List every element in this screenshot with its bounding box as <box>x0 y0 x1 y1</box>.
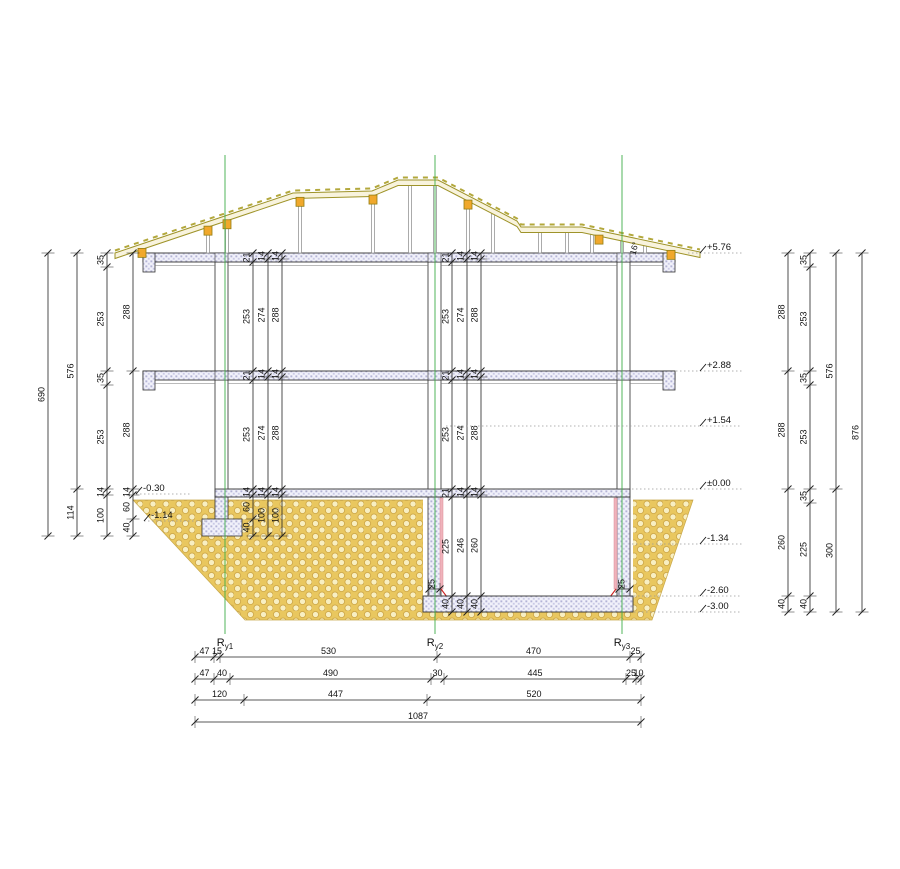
purlin-block <box>223 220 231 229</box>
dim-label: 246 <box>456 538 466 553</box>
level-tick <box>700 589 706 596</box>
dim-label: 14 <box>96 487 106 497</box>
dim-label: 14 <box>470 251 480 261</box>
axis-label-sub: y1 <box>225 642 234 651</box>
dim-label: 530 <box>321 646 336 656</box>
dim-label: 225 <box>441 539 451 554</box>
axis-label-base: R <box>614 637 622 649</box>
dim-chain: 4740490304452510 <box>192 668 645 685</box>
dim-chain: 576114 <box>66 250 84 540</box>
dim-label: 100 <box>257 508 267 523</box>
level-tick <box>700 537 706 544</box>
dim-label: 288 <box>470 425 480 440</box>
dim-label: 21 <box>441 370 451 380</box>
dim-label: 47 <box>199 668 209 678</box>
dim-label: 100 <box>271 508 281 523</box>
dim-label: 35 <box>96 373 106 383</box>
dim-label: 14 <box>257 251 267 261</box>
dim-label: 14 <box>242 487 252 497</box>
dim-label: 445 <box>527 668 542 678</box>
dim-label: 21 <box>441 488 451 498</box>
level-tick <box>700 246 706 253</box>
dim-chain: 471553047025 <box>192 646 645 663</box>
roof: 16° <box>115 178 700 260</box>
level-label: +2.88 <box>707 360 731 371</box>
dim-label: 14 <box>470 487 480 497</box>
dim-label: 25 <box>630 646 640 656</box>
dim-chain: 576300 <box>825 250 843 616</box>
level-label: -1.34 <box>707 533 729 544</box>
dim-chain: 35253352533522540 <box>799 250 817 616</box>
dim-label: 15 <box>212 646 222 656</box>
dim-label: 25 <box>617 579 627 589</box>
middle-slab-wall-block-1 <box>215 371 228 380</box>
dim-label: 40 <box>122 522 132 532</box>
dim-label: 253 <box>441 427 451 442</box>
dim-label: 40 <box>217 668 227 678</box>
dim-label: 225 <box>799 542 809 557</box>
dim-label: 40 <box>777 599 787 609</box>
dim-label: 470 <box>526 646 541 656</box>
dim-label: 40 <box>799 599 809 609</box>
purlin-block <box>595 235 603 244</box>
dim-label: 288 <box>122 422 132 437</box>
dim-chain: 1087 <box>192 711 645 728</box>
roof-post <box>539 233 542 254</box>
dim-label: 274 <box>456 425 466 440</box>
dim-label: 40 <box>441 599 451 609</box>
drawing-canvas: 16° Ry1Ry2Ry3 -0.30 -1.14 69057611435253… <box>0 0 900 869</box>
dim-label: 35 <box>799 255 809 265</box>
dim-label: 21 <box>441 252 451 262</box>
dim-label: 520 <box>526 689 541 699</box>
axis-label: Ry3 <box>614 637 631 651</box>
dim-label: 576 <box>825 363 835 378</box>
dim-label: 60 <box>242 502 252 512</box>
roof-post <box>372 196 375 253</box>
dim-label: 47 <box>199 646 209 656</box>
dim-label: 14 <box>456 251 466 261</box>
dim-label: 60 <box>122 502 132 512</box>
dim-chain: 690 <box>37 250 55 540</box>
dim-label: 14 <box>271 251 281 261</box>
roof-post <box>644 246 647 253</box>
middle-slab-wall-block-2 <box>428 371 441 380</box>
dim-label: 100 <box>96 508 106 523</box>
dim-label: 14 <box>257 369 267 379</box>
roof-posts <box>207 186 647 254</box>
dim-label: 14 <box>456 487 466 497</box>
level-label: ±0.00 <box>707 478 731 489</box>
level-tick <box>700 605 706 612</box>
dim-chain: 352533525314100 <box>96 250 114 540</box>
dim-label: 288 <box>470 307 480 322</box>
roof-post <box>591 235 594 253</box>
level-tick <box>136 487 142 494</box>
dim-label: 14 <box>257 487 267 497</box>
dim-label: 30 <box>432 668 442 678</box>
dim-label: 274 <box>456 307 466 322</box>
level-label: +5.76 <box>707 242 731 253</box>
dim-label: 576 <box>66 363 76 378</box>
axis-label-base: R <box>427 637 435 649</box>
purlin-block <box>464 200 472 209</box>
dim-label: 253 <box>242 427 252 442</box>
elevation-marker: +1.54 <box>446 415 742 426</box>
dim-label: 25 <box>427 579 437 589</box>
roof-battens <box>115 178 700 251</box>
dim-label: 274 <box>257 425 267 440</box>
level-label: -1.14 <box>151 510 173 521</box>
dim-chain: 288288146040 <box>122 250 140 540</box>
dim-label: 253 <box>242 309 252 324</box>
dim-label: 35 <box>799 491 809 501</box>
roof-post <box>492 214 495 253</box>
dim-label: 288 <box>777 422 787 437</box>
dim-label: 114 <box>66 505 76 519</box>
top-slab-wall-block-1 <box>215 253 228 262</box>
middle-slab-wall-block-3 <box>617 371 630 380</box>
waterproofing-strip-right <box>614 498 617 589</box>
dim-label: 260 <box>470 538 480 553</box>
dim-label: 40 <box>456 599 466 609</box>
roof-plane <box>115 180 700 259</box>
dim-label: 274 <box>257 307 267 322</box>
dim-label: 10 <box>633 668 643 678</box>
level-tick <box>700 482 706 489</box>
dim-label: 288 <box>271 425 281 440</box>
dim-label: 21 <box>242 370 252 380</box>
dim-label: 260 <box>777 535 787 550</box>
dim-chain: 876 <box>851 250 869 616</box>
roof-post <box>566 233 569 254</box>
elevation-marker: +2.88 <box>676 360 742 371</box>
dim-label: 14 <box>456 369 466 379</box>
roof-post <box>409 186 412 254</box>
top-slab-wall-block-3 <box>617 253 630 262</box>
purlin-block <box>667 250 675 259</box>
dim-label: 35 <box>799 373 809 383</box>
axis-label: Ry2 <box>427 637 444 651</box>
purlin-block <box>204 226 212 235</box>
dim-label: 690 <box>37 387 47 402</box>
level-tick <box>700 419 706 426</box>
dim-label: 253 <box>441 309 451 324</box>
top-slab-wall-block-2 <box>428 253 441 262</box>
section-drawing: 16° Ry1Ry2Ry3 -0.30 -1.14 69057611435253… <box>0 0 900 869</box>
dim-label: 35 <box>96 255 106 265</box>
dim-label: 14 <box>271 487 281 497</box>
purlin-block <box>296 197 304 206</box>
axis-label-sub: y3 <box>622 642 631 651</box>
elevation-marker: ±0.00 <box>632 478 742 489</box>
level-label: -3.00 <box>707 601 729 612</box>
level-label: -0.30 <box>143 483 165 494</box>
dim-label: 14 <box>271 369 281 379</box>
dim-chain: 120447520 <box>192 689 645 706</box>
basement-excavation <box>423 496 633 612</box>
dim-label: 253 <box>799 311 809 326</box>
dim-label: 447 <box>328 689 343 699</box>
purlin-block <box>369 195 377 204</box>
level-tick <box>700 364 706 371</box>
dim-label: 253 <box>96 429 106 444</box>
dim-label: 14 <box>122 487 132 497</box>
dim-label: 21 <box>242 252 252 262</box>
dim-label: 253 <box>96 311 106 326</box>
dim-label: 300 <box>825 543 835 558</box>
middle-slab-edge-right <box>663 371 675 390</box>
footing-stem <box>215 497 228 519</box>
dim-label: 40 <box>470 599 480 609</box>
dim-label: 288 <box>122 304 132 319</box>
footing-pad <box>202 519 242 536</box>
roof-purlins <box>138 195 675 259</box>
dim-label: 40 <box>242 522 252 532</box>
middle-slab-edge-left <box>143 371 155 390</box>
dim-label: 876 <box>851 425 861 440</box>
dim-label: 120 <box>212 689 227 699</box>
dim-label: 288 <box>777 304 787 319</box>
dim-label: 490 <box>323 668 338 678</box>
dim-label: 253 <box>799 429 809 444</box>
dim-chain: 28828826040 <box>777 250 795 616</box>
level-label: +1.54 <box>707 415 731 426</box>
axis-label-sub: y2 <box>435 642 444 651</box>
dim-label: 288 <box>271 307 281 322</box>
dim-label: 14 <box>470 369 480 379</box>
dim-label: 1087 <box>408 711 428 721</box>
level-label: -2.60 <box>707 585 729 596</box>
